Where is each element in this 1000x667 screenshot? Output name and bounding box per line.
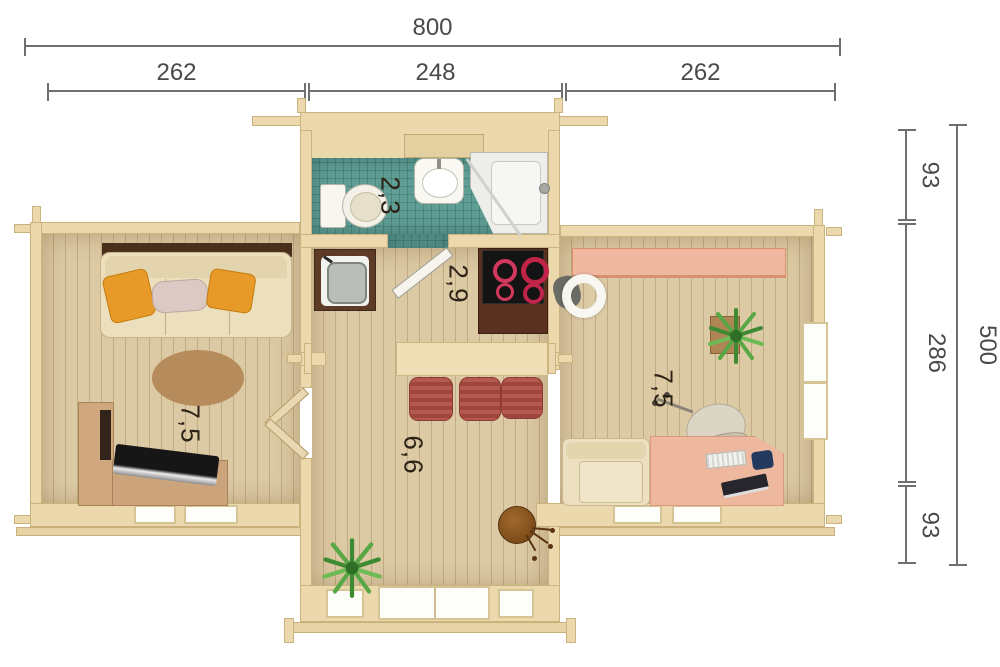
dim-width-living: 262: [48, 90, 305, 92]
shower-tray-inner: [491, 161, 541, 225]
door-mullion: [434, 588, 436, 618]
log-end: [814, 209, 823, 226]
pillow-orange: [205, 268, 257, 315]
desk: [650, 436, 784, 506]
bath-kitchen-wall-right: [448, 234, 560, 248]
bathroom-area-label: 2,3: [375, 176, 406, 215]
kitchen-area-label: 2,9: [443, 264, 474, 303]
log-end: [559, 116, 608, 126]
dim-total-width-label: 800: [412, 14, 452, 42]
window-mullion: [804, 381, 826, 384]
living-area-label: 7,5: [175, 404, 206, 443]
dim-height-middle: 286: [905, 224, 907, 482]
log-end: [548, 343, 556, 374]
office-wall-top: [560, 225, 825, 237]
wardrobe: [78, 402, 114, 506]
round-mirror: [562, 274, 606, 318]
mouse-pad: [751, 450, 774, 471]
coat-stand-leg-cap: [548, 544, 553, 549]
wardrobe-interior: [100, 410, 111, 460]
plant: [706, 306, 766, 366]
coat-stand-leg-cap: [532, 556, 537, 561]
floor-plan-canvas: 800 262 248 262 93 286 93 500: [0, 0, 1000, 667]
office-window-side: [802, 322, 828, 440]
armchair: [562, 438, 650, 506]
log-end: [287, 354, 302, 363]
burner: [523, 283, 544, 304]
dim-width-living-label: 262: [156, 59, 196, 87]
log-end: [284, 618, 294, 643]
burner: [493, 259, 517, 283]
armchair-back: [566, 442, 646, 459]
log-end: [32, 206, 41, 223]
armchair-seat: [579, 461, 643, 503]
dim-height-bottom: 93: [905, 486, 907, 563]
hall-sill: [284, 622, 576, 633]
log-end: [252, 116, 301, 126]
log-end: [558, 354, 573, 363]
living-wall-top: [30, 222, 300, 234]
pillow-pink: [151, 278, 209, 314]
dim-total-height: 500: [956, 125, 958, 565]
dim-total-height-label: 500: [973, 325, 1000, 365]
hall-area-label: 6,6: [398, 435, 429, 474]
rug: [152, 350, 244, 406]
living-window-2: [184, 505, 238, 524]
office-window-1: [613, 505, 662, 524]
coat-stand-table: [498, 506, 536, 544]
central-wall-left-lower: [300, 458, 312, 588]
dim-width-office-label: 262: [680, 59, 720, 87]
office-area-label: 7,5: [648, 369, 679, 408]
dim-width-office: 262: [566, 90, 835, 92]
dim-height-middle-label: 286: [922, 333, 950, 373]
log-end: [566, 618, 576, 643]
bathroom-sink: [414, 158, 464, 204]
log-end: [304, 343, 312, 374]
burner: [496, 283, 514, 301]
sink-faucet: [437, 159, 441, 169]
dim-width-center: 248: [309, 90, 562, 92]
log-end: [826, 227, 842, 236]
log-end: [826, 515, 842, 524]
bar-counter: [396, 342, 548, 376]
cooktop: [482, 250, 544, 304]
bathroom-doorway-threshold: [388, 234, 448, 248]
bar-stool: [409, 377, 453, 421]
living-sill: [16, 527, 312, 536]
dim-width-center-label: 248: [415, 59, 455, 87]
log-end: [14, 224, 31, 233]
dim-total-width: 800: [25, 45, 840, 47]
log-end: [297, 98, 306, 113]
burner: [521, 257, 549, 285]
plant: [320, 536, 384, 600]
shower-head: [539, 183, 550, 194]
hall-window-right: [498, 589, 534, 618]
log-end: [554, 98, 563, 113]
bar-stool: [501, 377, 543, 419]
sink-basin: [422, 168, 458, 198]
living-wall-left: [30, 222, 42, 527]
entrance-double-door: [378, 586, 490, 620]
bathroom-wall-top: [300, 112, 560, 132]
dim-height-top: 93: [905, 130, 907, 220]
bath-kitchen-wall-left: [300, 234, 388, 248]
coat-stand-leg-cap: [550, 528, 555, 533]
dim-height-bottom-label: 93: [915, 511, 943, 538]
central-wall-right-upper: [548, 130, 560, 370]
office-window-2: [672, 505, 722, 524]
office-sill: [550, 527, 835, 536]
kitchen-sink-basin: [327, 262, 367, 304]
kitchen-sink-unit: [314, 249, 376, 311]
living-window-1: [134, 505, 176, 524]
office-shelf: [572, 248, 786, 278]
bar-stool: [459, 377, 501, 421]
log-end: [14, 515, 31, 524]
dim-height-top-label: 93: [915, 162, 943, 189]
